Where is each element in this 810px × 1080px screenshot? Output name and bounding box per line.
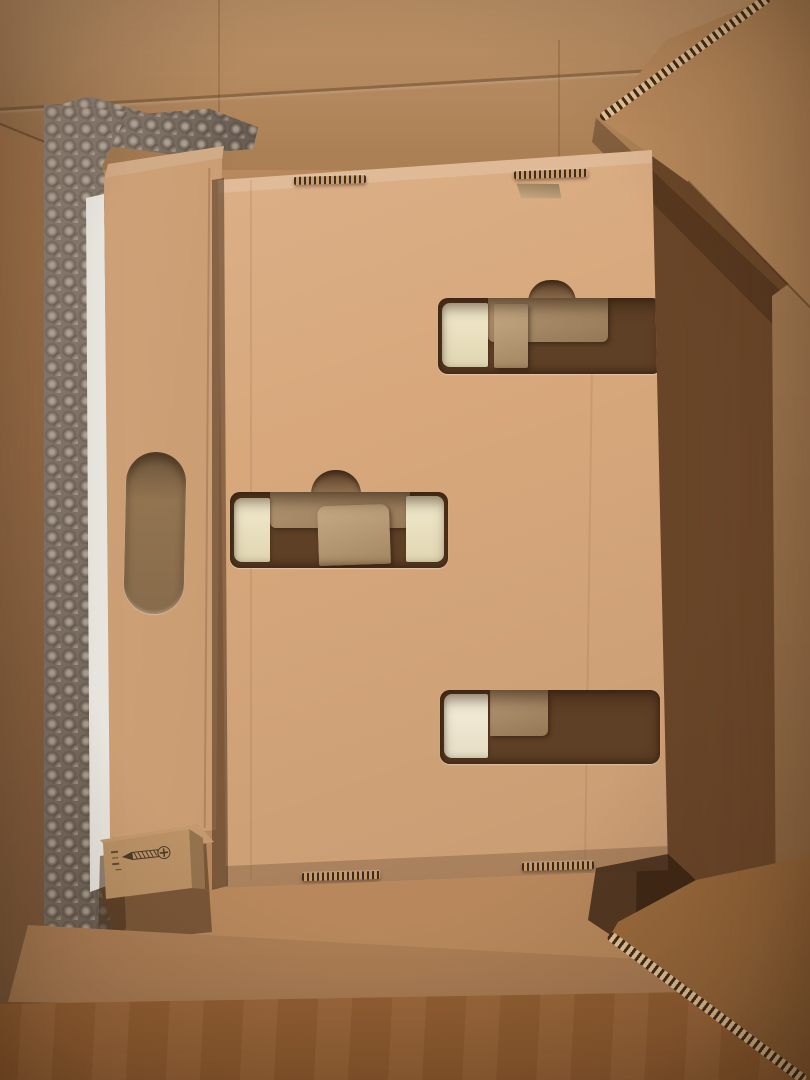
screw-icon <box>120 845 172 867</box>
screw-size-marking <box>111 851 118 854</box>
cutout-middle-left <box>230 492 448 568</box>
cutout-shading <box>440 690 660 764</box>
locking-slot <box>514 169 588 180</box>
cutout-top-right <box>438 298 662 374</box>
cutout-shading <box>230 492 448 568</box>
tab-flap <box>515 180 563 203</box>
face-crease <box>584 300 594 860</box>
panel-crease <box>204 168 211 828</box>
open-box-photo <box>0 0 810 1080</box>
cutout-bottom-right <box>440 690 660 764</box>
hand-hole-cutout <box>123 451 186 614</box>
cutout-shading <box>438 298 662 374</box>
notch-cutout <box>311 470 361 494</box>
far-wall-seam <box>558 40 560 160</box>
